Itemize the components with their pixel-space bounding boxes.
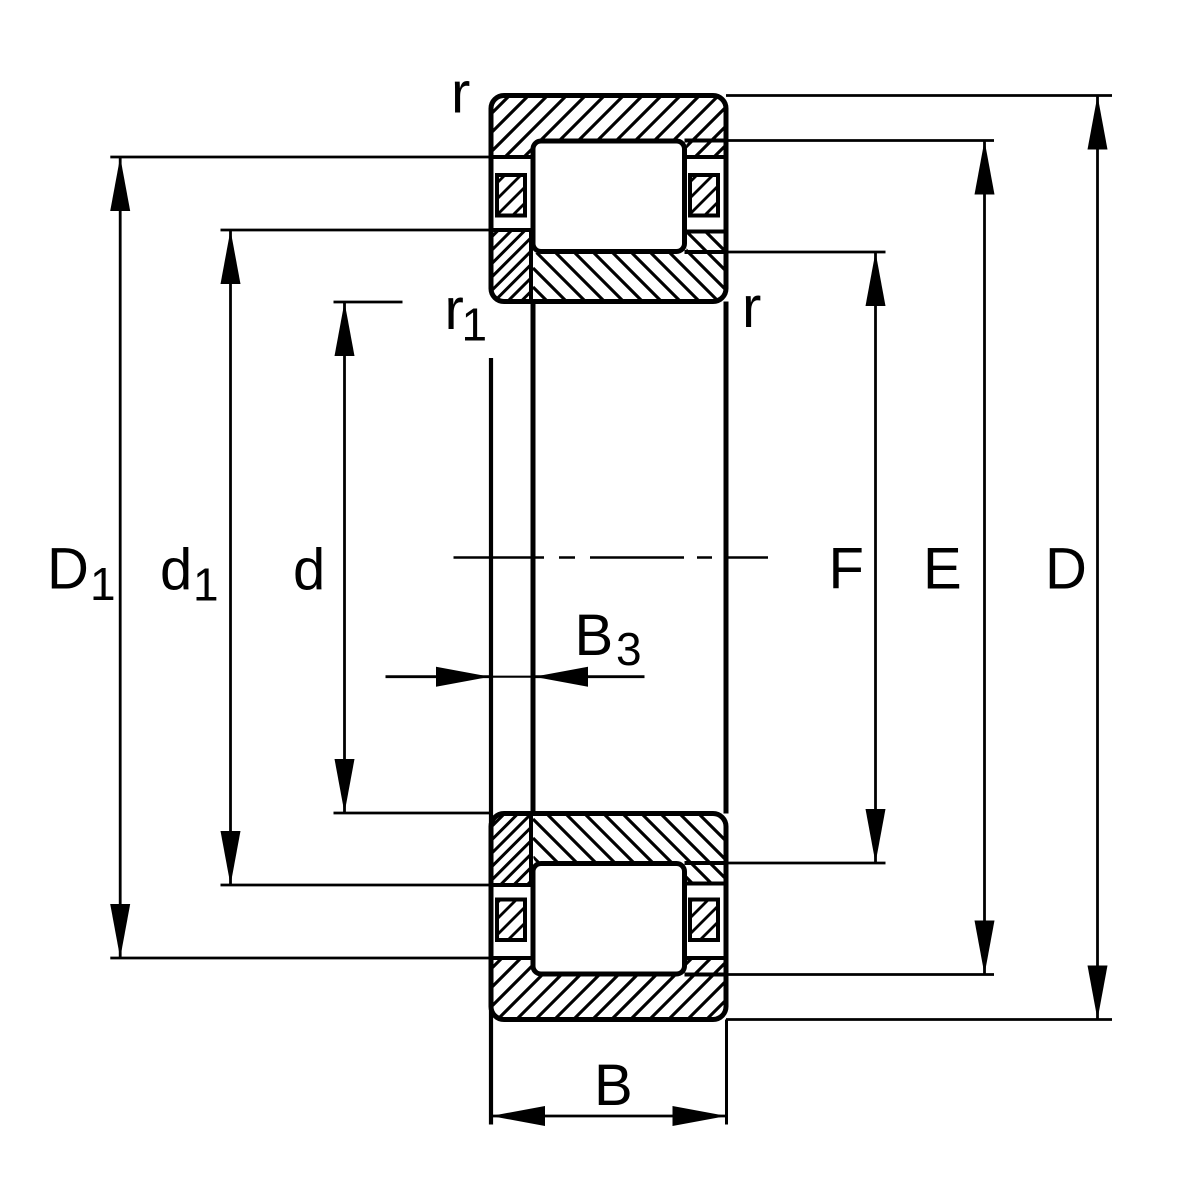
svg-text:d: d bbox=[160, 538, 192, 603]
svg-text:r: r bbox=[451, 61, 470, 126]
svg-text:E: E bbox=[923, 537, 962, 602]
svg-text:1: 1 bbox=[193, 559, 219, 611]
svg-text:3: 3 bbox=[616, 623, 642, 675]
svg-text:1: 1 bbox=[462, 299, 488, 351]
svg-text:B: B bbox=[575, 603, 614, 668]
svg-text:D: D bbox=[47, 537, 89, 602]
svg-text:B: B bbox=[594, 1053, 633, 1118]
svg-text:d: d bbox=[293, 538, 325, 603]
svg-text:r: r bbox=[742, 275, 761, 340]
svg-text:F: F bbox=[829, 537, 864, 602]
svg-text:D: D bbox=[1045, 537, 1087, 602]
svg-text:1: 1 bbox=[90, 558, 116, 610]
